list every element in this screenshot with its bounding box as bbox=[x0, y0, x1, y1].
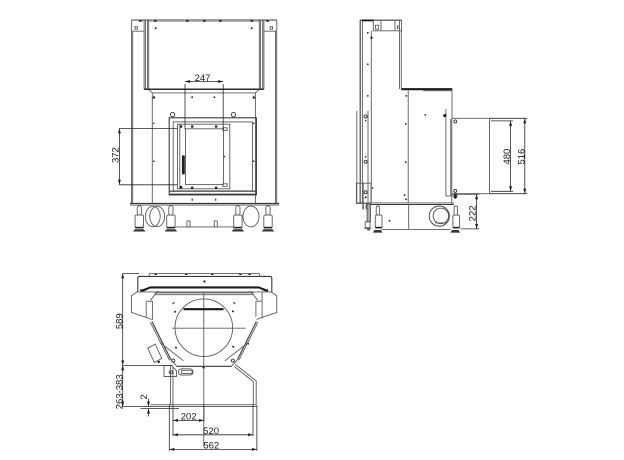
svg-text:263-383: 263-383 bbox=[114, 374, 125, 409]
svg-text:480: 480 bbox=[502, 149, 513, 165]
svg-text:247: 247 bbox=[195, 73, 211, 84]
svg-text:202: 202 bbox=[181, 412, 197, 423]
svg-text:222: 222 bbox=[468, 205, 479, 221]
svg-text:2: 2 bbox=[139, 394, 150, 399]
svg-text:589: 589 bbox=[115, 313, 126, 329]
svg-text:516: 516 bbox=[516, 149, 527, 165]
svg-text:562: 562 bbox=[203, 441, 219, 452]
svg-text:372: 372 bbox=[111, 147, 122, 163]
svg-text:520: 520 bbox=[203, 426, 219, 437]
